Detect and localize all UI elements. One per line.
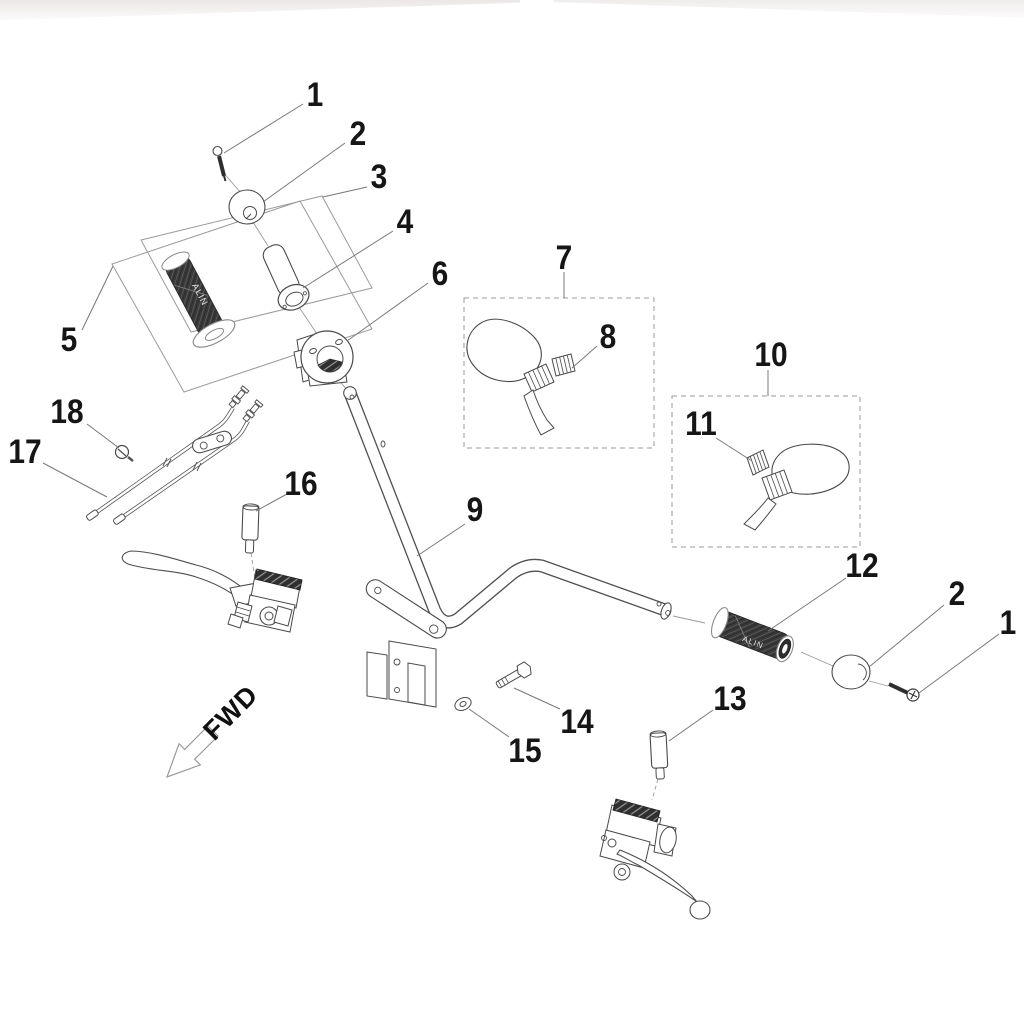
part-1-screw-right [889,684,919,701]
left-master-cylinder-assembly [122,551,302,632]
callout-14: 14 [560,705,593,739]
part-4-throttle-tube [256,240,313,315]
callout-18: 18 [50,395,83,429]
callout-17: 17 [8,435,41,469]
callout-11: 11 [685,407,717,441]
right-master-cylinder-assembly [600,799,710,919]
callout-16: 16 [284,467,317,501]
callout-1-left: 1 [307,78,324,112]
callout-3: 3 [371,160,388,194]
part-2-bar-end-cap-right [832,655,870,689]
parts-diagram-page: ALIN [0,0,1024,1024]
part-1-screw-left [213,147,226,182]
diagram-canvas: ALIN [0,0,1024,1024]
part-17-cables [86,386,263,525]
callout-8: 8 [600,320,617,354]
part-13-bushing-right [650,731,668,780]
leader-lines [43,104,999,741]
part-5-left-grip: ALIN [152,245,239,353]
callout-6: 6 [432,257,449,291]
part-7-mirror-left [467,319,554,435]
part-2-bar-end-cap-left [229,190,265,224]
part-6-throttle-housing [294,331,353,386]
callout-15: 15 [508,734,541,768]
callout-7: 7 [556,241,573,275]
callout-10: 10 [754,338,787,372]
callout-12: 12 [845,549,878,583]
part-8-mirror-adapter-left [552,354,575,376]
part-9-handlebar [344,387,673,707]
part-14-bolt [494,660,534,691]
callout-2-right: 2 [949,577,966,611]
part-11-mirror-adapter-right [747,450,769,475]
callout-2-left: 2 [350,117,367,151]
callout-9: 9 [467,493,484,527]
callout-4: 4 [397,205,414,239]
callout-1-right: 1 [1000,606,1017,640]
part-12-right-grip: ALIN [708,605,798,665]
callout-5: 5 [61,323,78,357]
callout-13: 13 [713,682,746,716]
